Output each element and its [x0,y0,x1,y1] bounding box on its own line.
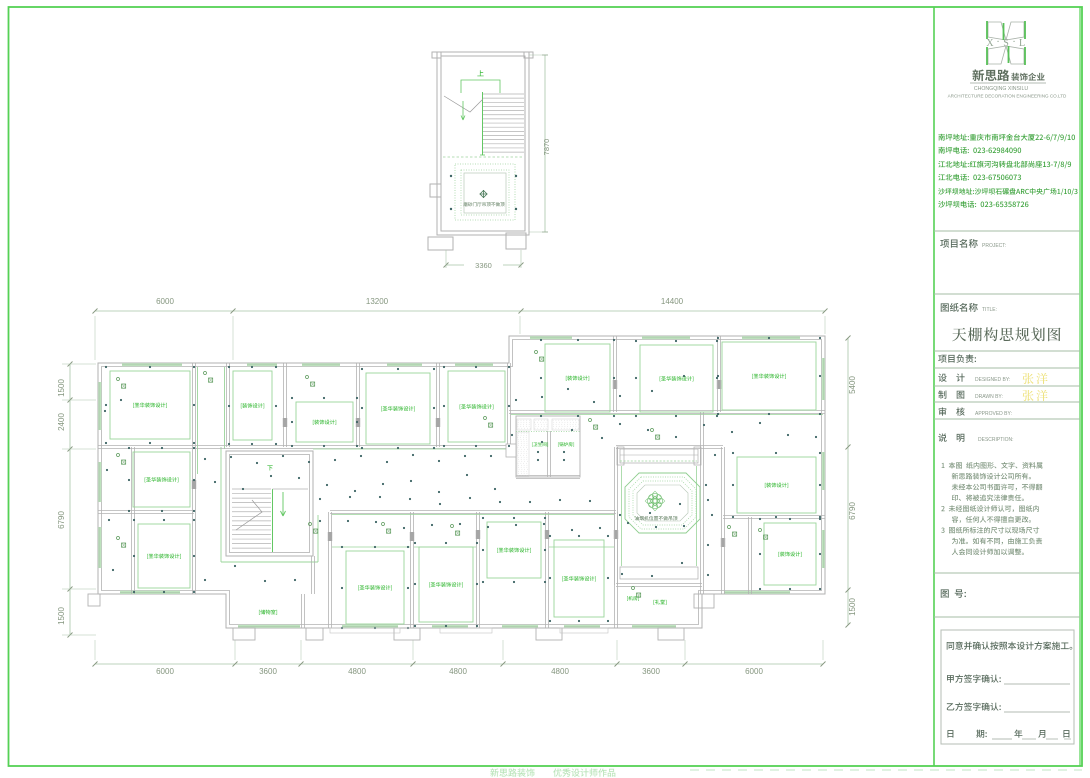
svg-text:ARCHITECTURE DECORATION ENGINE: ARCHITECTURE DECORATION ENGINEERING CO.L… [948,94,1067,99]
svg-text:14400: 14400 [661,297,684,306]
svg-text:3600: 3600 [642,667,660,676]
svg-text:7870: 7870 [542,139,551,156]
svg-text:6790: 6790 [848,502,857,520]
svg-text:2400: 2400 [57,413,66,431]
svg-text:CHONGQING XINSILU: CHONGQING XINSILU [974,86,1028,92]
svg-text:·: · [1012,37,1015,48]
svg-text:·: · [996,37,999,48]
svg-text:6000: 6000 [156,667,174,676]
svg-text:3600: 3600 [259,667,277,676]
svg-text:L: L [1019,38,1025,49]
svg-text:1500: 1500 [848,598,857,616]
svg-text:DRAWN BY:: DRAWN BY: [975,394,1003,400]
svg-text:5400: 5400 [848,376,857,394]
svg-text:4800: 4800 [348,667,366,676]
svg-text:1500: 1500 [57,379,66,397]
svg-text:S: S [1003,38,1009,49]
svg-text:DESIGNED BY:: DESIGNED BY: [975,377,1010,383]
svg-text:APPROVED BY:: APPROVED BY: [975,411,1012,417]
svg-text:6790: 6790 [57,511,66,529]
svg-text:3360: 3360 [475,261,492,270]
svg-text:TITLE:: TITLE: [982,307,997,313]
svg-text:4800: 4800 [449,667,467,676]
svg-text:4800: 4800 [551,667,569,676]
svg-text:6000: 6000 [745,667,763,676]
svg-text:6000: 6000 [156,297,174,306]
svg-text:1500: 1500 [57,607,66,625]
svg-text:PROJECT:: PROJECT: [982,243,1006,249]
svg-text:X: X [986,38,994,49]
svg-text:DESCRIPTION:: DESCRIPTION: [978,437,1014,443]
svg-text:13200: 13200 [366,297,389,306]
